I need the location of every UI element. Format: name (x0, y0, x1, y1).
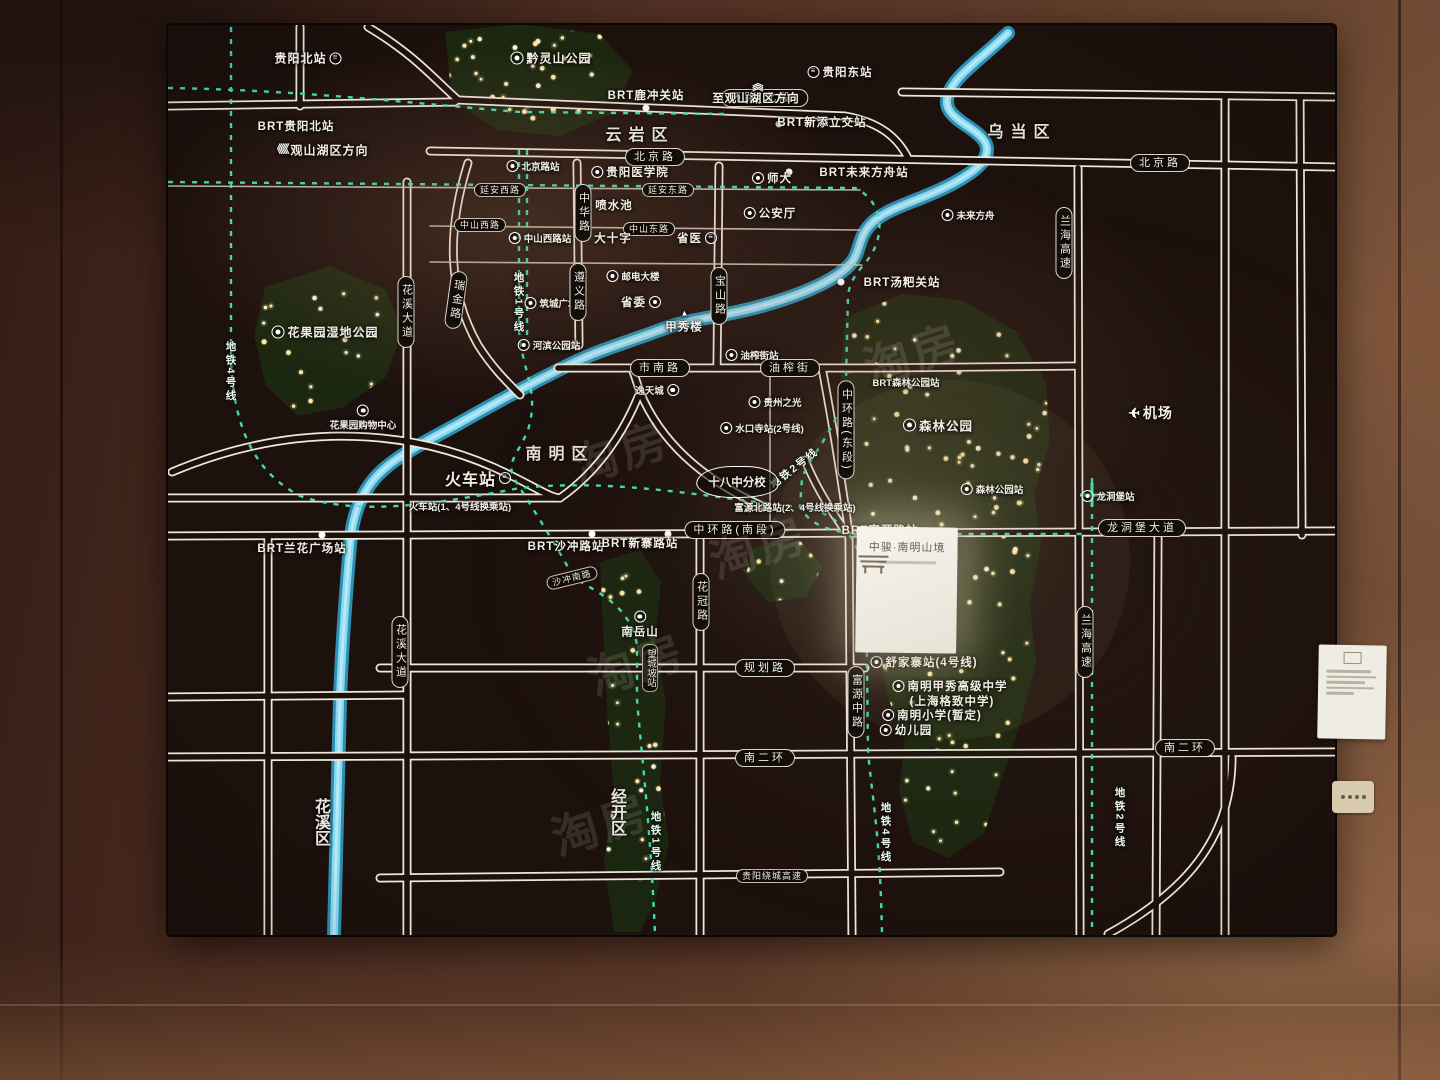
label-text: 火车站 (445, 466, 496, 490)
map-label-ps-23: 中山西路 (454, 218, 506, 232)
map-label-s-21: 喷水池 (595, 197, 633, 213)
label-text: BRT新寨路站 (602, 535, 679, 551)
map-label-pv-69: 花冠路 (693, 573, 710, 631)
label-text: 逸天城 (635, 383, 664, 397)
map-label-ss-50: 水口寺站(2号线) (720, 421, 804, 435)
map-label-s-65: BRT新寨路站 (602, 535, 679, 551)
map-label-s-74: 舒家寨站(4号线) (870, 654, 977, 670)
label-text: 至观山湖区方向 (712, 90, 800, 106)
label-text: 延安东路 (648, 184, 688, 196)
map-label-mv-86: 地铁2号线 (1113, 787, 1128, 850)
label-text: 富源中路 (850, 674, 863, 730)
label-text: 贵阳绕城高速 (742, 870, 802, 882)
map-label-s-5: BRT鹿冲关站 (608, 87, 685, 103)
label-text: 省医 (677, 230, 702, 246)
label-text: 地铁2号线 (1113, 787, 1128, 850)
map-label-s-29: 省委 (621, 294, 661, 310)
map-label-s-6: 《《至观山湖区方向 (712, 78, 800, 106)
label-text: 未来方舟 (956, 208, 994, 222)
label-text: BRT沙冲路站 (528, 538, 605, 554)
plane-icon: ✈ (1127, 406, 1140, 420)
map-label-ss-13: 北京路站 (506, 159, 559, 173)
label-text: 十八中分校 (708, 474, 766, 490)
label-text: 邮电大楼 (621, 269, 659, 283)
label-text: 北京路 (1139, 156, 1181, 170)
metro-icon (941, 209, 953, 221)
map-label-s-7: 贵阳东站 (808, 64, 873, 80)
label-text: 甲秀楼 (665, 319, 703, 335)
label-text: 油榨街 (769, 361, 811, 375)
label-text: 北京路 (634, 150, 676, 164)
label-text: BRT汤粑关站 (864, 274, 941, 290)
map-label-s-64: BRT沙冲路站 (528, 538, 605, 554)
map-label-p-80: 南二环 (1155, 739, 1215, 757)
metro-icon (744, 207, 756, 219)
map-label-s-16: BRT未来方舟站 (819, 164, 908, 180)
map-label-mv-37: 地铁4号线 (224, 341, 239, 404)
map-label-av-82: 花溪区 (308, 798, 332, 846)
label-text: 宝山路 (713, 275, 726, 317)
label-text: 龙洞堡大道 (1107, 521, 1177, 535)
label-text: 舒家寨站(4号线) (885, 654, 977, 670)
label-text: 森林公园 (919, 416, 973, 435)
skirting-line (0, 1004, 1440, 1006)
dot-icon (748, 396, 760, 408)
map-board: 贵阳北站BRT贵阳北站《《《观山湖区方向黔灵山公园环路(北段)BRT鹿冲关站《《… (168, 25, 1335, 935)
map-label-s-1: BRT贵阳北站 (258, 118, 335, 134)
label-text: 森林公园站 (976, 482, 1024, 496)
pagoda-icon: ▲ (681, 310, 688, 318)
map-label-p-60: 龙洞堡大道 (1098, 519, 1186, 537)
wall-lower-band (0, 940, 1440, 1080)
rail-icon (705, 232, 717, 244)
map-label-s-78: 幼儿园 (880, 722, 933, 738)
map-label-ss-17: 未来方舟 (941, 208, 994, 222)
label-text: 云岩区 (605, 121, 674, 145)
chevu-icon: 《《 (751, 77, 762, 90)
plaque-logo (1343, 652, 1361, 664)
wall-seam-left (60, 0, 63, 1080)
label-text: 黔灵山公园 (526, 50, 591, 67)
map-label-s-27: 省医 (677, 230, 717, 246)
label-text: 延安西路 (480, 184, 520, 196)
map-label-s-75: 南明甲秀高级中学 (893, 678, 1008, 694)
map-label-s-22: 公安厅 (744, 205, 797, 221)
map-label-s-77: 南明小学(暂定) (882, 707, 982, 723)
map-label-ss-25: 中山西路站 (509, 231, 572, 245)
map-label-ss-38: 河滨公园站 (518, 338, 581, 352)
label-text: 花果园购物中心 (330, 418, 397, 432)
rail-icon (499, 472, 511, 484)
label-text: 南二环 (744, 751, 786, 765)
metro-icon (506, 160, 518, 172)
map-label-p-40: 市南路 (630, 359, 690, 377)
map-label-s-26: 大十字 (594, 230, 632, 246)
metro-icon (634, 611, 646, 623)
metro-icon (649, 296, 661, 308)
map-label-p-12: 北京路 (1130, 154, 1190, 172)
label-text: 贵阳北站 (274, 50, 326, 67)
map-label-mv-85: 地铁4号线 (879, 802, 894, 865)
map-label-mv-36: 地铁1号线 (512, 272, 527, 335)
map-label-ss-42: 油榨街站 (725, 348, 778, 362)
label-text: 喷水池 (595, 197, 633, 213)
label-text: 河滨公园站 (533, 338, 581, 352)
metro-icon (961, 483, 973, 495)
map-label-s-39: BRT汤粑关站 (864, 274, 941, 290)
project-logo-gate-icon (856, 552, 890, 574)
park-icon (510, 52, 523, 65)
light-switch-panel[interactable] (1332, 781, 1374, 813)
map-label-ps-19: 延安东路 (642, 183, 694, 197)
map-label-ss-55: 火车站(1、4号线换乘站) (409, 499, 511, 513)
label-text: 中环路(东段) (840, 388, 853, 471)
map-label-s-30: ▲甲秀楼 (665, 310, 703, 335)
map-label-s-63: BRT兰花广场站 (257, 540, 346, 556)
label-text: 乌当区 (987, 118, 1056, 142)
map-label-ss-59: 龙洞堡站 (1081, 489, 1134, 503)
label-text: 中山东路 (629, 223, 669, 235)
map-label-pv-20: 中华路 (575, 184, 592, 242)
map-label-s-3: 黔灵山公园 (510, 50, 591, 67)
label-text: BRT未来方舟站 (819, 164, 908, 180)
label-text: BRT贵阳北站 (258, 118, 335, 134)
label-text: 贵州之光 (763, 395, 801, 409)
label-text: BRT兰花广场站 (257, 540, 346, 556)
map-label-pv-61: 兰海高速 (1056, 207, 1073, 279)
label-text: 龙洞堡站 (1096, 489, 1134, 503)
map-label-pv-73: 富源中路 (848, 666, 865, 738)
map-label-s-49: ✈机场 (1127, 403, 1173, 423)
label-text: 地铁4号线 (224, 341, 239, 404)
park-icon (271, 326, 284, 339)
label-text: 花溪大道 (400, 284, 413, 340)
label-text: 北京路站 (521, 159, 559, 173)
map-label-s-47: 森林公园 (903, 416, 973, 435)
label-text: 公安厅 (759, 205, 797, 221)
metro-icon (591, 166, 603, 178)
label-text: 南明小学(暂定) (897, 707, 982, 723)
map-label-s-45: 花果园湿地公园 (271, 324, 378, 341)
map-label-pv-35: 宝山路 (711, 267, 728, 325)
label-text: 火车站(1、4号线换乘站) (409, 499, 511, 513)
project-card: 中骏·南明山境 (855, 526, 958, 653)
park-icon (903, 419, 916, 432)
map-label-s-8: BRT新添立交站 (777, 114, 866, 130)
dot-icon (893, 680, 905, 692)
label-text: 省委 (621, 294, 646, 310)
dot-icon (357, 405, 369, 417)
label-text: BRT新添立交站 (777, 114, 866, 130)
wall-seam-right (1398, 0, 1401, 1080)
label-text: 市南路 (639, 361, 681, 375)
map-label-pv-32: 遵义路 (570, 263, 587, 321)
metro-icon (870, 656, 882, 668)
label-text: 南明甲秀高级中学 (908, 678, 1008, 694)
chevl-icon: 《《《 (271, 145, 287, 156)
dot-icon (882, 709, 894, 721)
label-text: 兰海高速 (1079, 614, 1092, 670)
label-text: 大十字 (594, 230, 632, 246)
wall-plaque (1317, 644, 1387, 739)
label-text: 水口寺站(2号线) (735, 421, 804, 435)
rail-icon (808, 66, 820, 78)
label-text: 中山西路站 (524, 231, 572, 245)
rail-icon (330, 52, 342, 64)
label-text: 规划路 (744, 661, 786, 675)
label-text: 幼儿园 (895, 722, 933, 738)
label-text: BRT鹿冲关站 (608, 87, 685, 103)
map-label-a-9: 云岩区 (605, 121, 674, 145)
map-label-s-14: 贵阳医学院 (591, 164, 669, 180)
label-text: 中山西路 (460, 219, 500, 231)
map-label-pv-34: 花溪大道 (398, 276, 415, 348)
label-text: 油榨街站 (740, 348, 778, 362)
label-text: 南二环 (1164, 741, 1206, 755)
map-label-ss-46: 花果园购物中心 (330, 405, 397, 432)
label-text: 花溪大道 (394, 624, 407, 680)
metro-icon (752, 172, 764, 184)
map-label-ss-28: 邮电大楼 (606, 269, 659, 283)
label-text: 机场 (1143, 403, 1173, 423)
map-label-s-54: 火车站 (445, 466, 511, 490)
map-label-pv-83: 花溪大道 (392, 616, 409, 688)
label-text: 兰海高速 (1058, 215, 1071, 271)
map-label-cloud-56: 十八中分校 (696, 466, 778, 498)
dot-icon (880, 724, 892, 736)
dot-icon (606, 270, 618, 282)
label-text: 观山湖区方向 (290, 142, 368, 159)
label-text: 花果园湿地公园 (287, 324, 378, 341)
map-label-p-72: 规划路 (735, 659, 795, 677)
map-label-ss-43: 逸天城 (635, 383, 679, 397)
photo-of-location-map-wall: 贵阳北站BRT贵阳北站《《《观山湖区方向黔灵山公园环路(北段)BRT鹿冲关站《《… (0, 0, 1440, 1080)
label-text: 贵阳东站 (823, 64, 873, 80)
map-label-s-0: 贵阳北站 (274, 50, 341, 67)
dot-icon (667, 384, 679, 396)
label-text: 地铁1号线 (512, 272, 527, 335)
label-text: 花溪区 (308, 798, 332, 846)
metro-icon (720, 422, 732, 434)
metro-icon (518, 339, 530, 351)
metro-icon (509, 232, 521, 244)
label-text: 地铁4号线 (879, 802, 894, 865)
label-text: 中华路 (577, 192, 590, 234)
label-text: 贵阳医学院 (606, 164, 669, 180)
map-label-ss-44: 贵州之光 (748, 395, 801, 409)
map-label-ps-18: 延安西路 (474, 183, 526, 197)
map-label-pv-62: 兰海高速 (1077, 606, 1094, 678)
label-text: 遵义路 (572, 271, 585, 313)
map-label-a-10: 乌当区 (987, 118, 1056, 142)
map-label-s-2: 《《《观山湖区方向 (271, 142, 368, 159)
map-label-ps-87: 贵阳绕城高速 (736, 869, 808, 883)
metro-icon (1081, 490, 1093, 502)
map-label-pv-51: 中环路(东段) (838, 380, 855, 479)
map-label-s-15: 师大 (752, 170, 792, 186)
map-label-ss-58: 森林公园站 (961, 482, 1024, 496)
map-label-p-79: 南二环 (735, 749, 795, 767)
label-text: 师大 (767, 170, 792, 186)
metro-icon (725, 349, 737, 361)
label-text: 花冠路 (695, 581, 708, 623)
